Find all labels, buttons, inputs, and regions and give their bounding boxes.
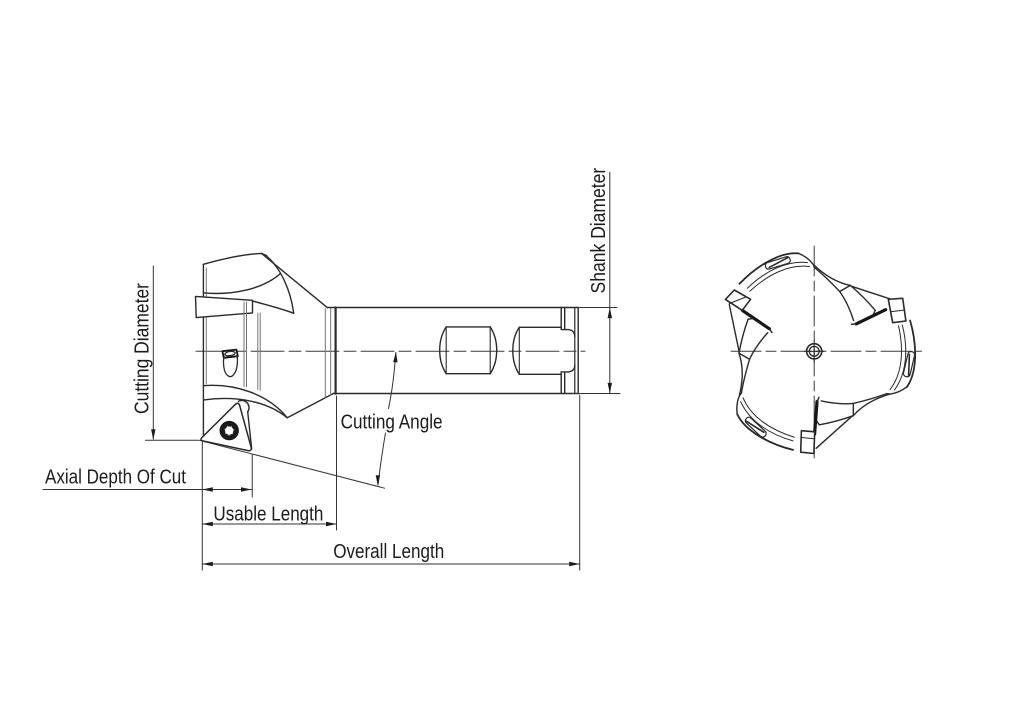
- svg-text:Cutting Angle: Cutting Angle: [341, 412, 443, 434]
- svg-text:Cutting Diameter: Cutting Diameter: [131, 283, 153, 414]
- svg-text:Shank Diameter: Shank Diameter: [588, 168, 610, 294]
- svg-text:Usable Length: Usable Length: [213, 504, 323, 526]
- svg-text:Overall Length: Overall Length: [333, 541, 444, 563]
- svg-text:Axial Depth Of Cut: Axial Depth Of Cut: [45, 467, 186, 489]
